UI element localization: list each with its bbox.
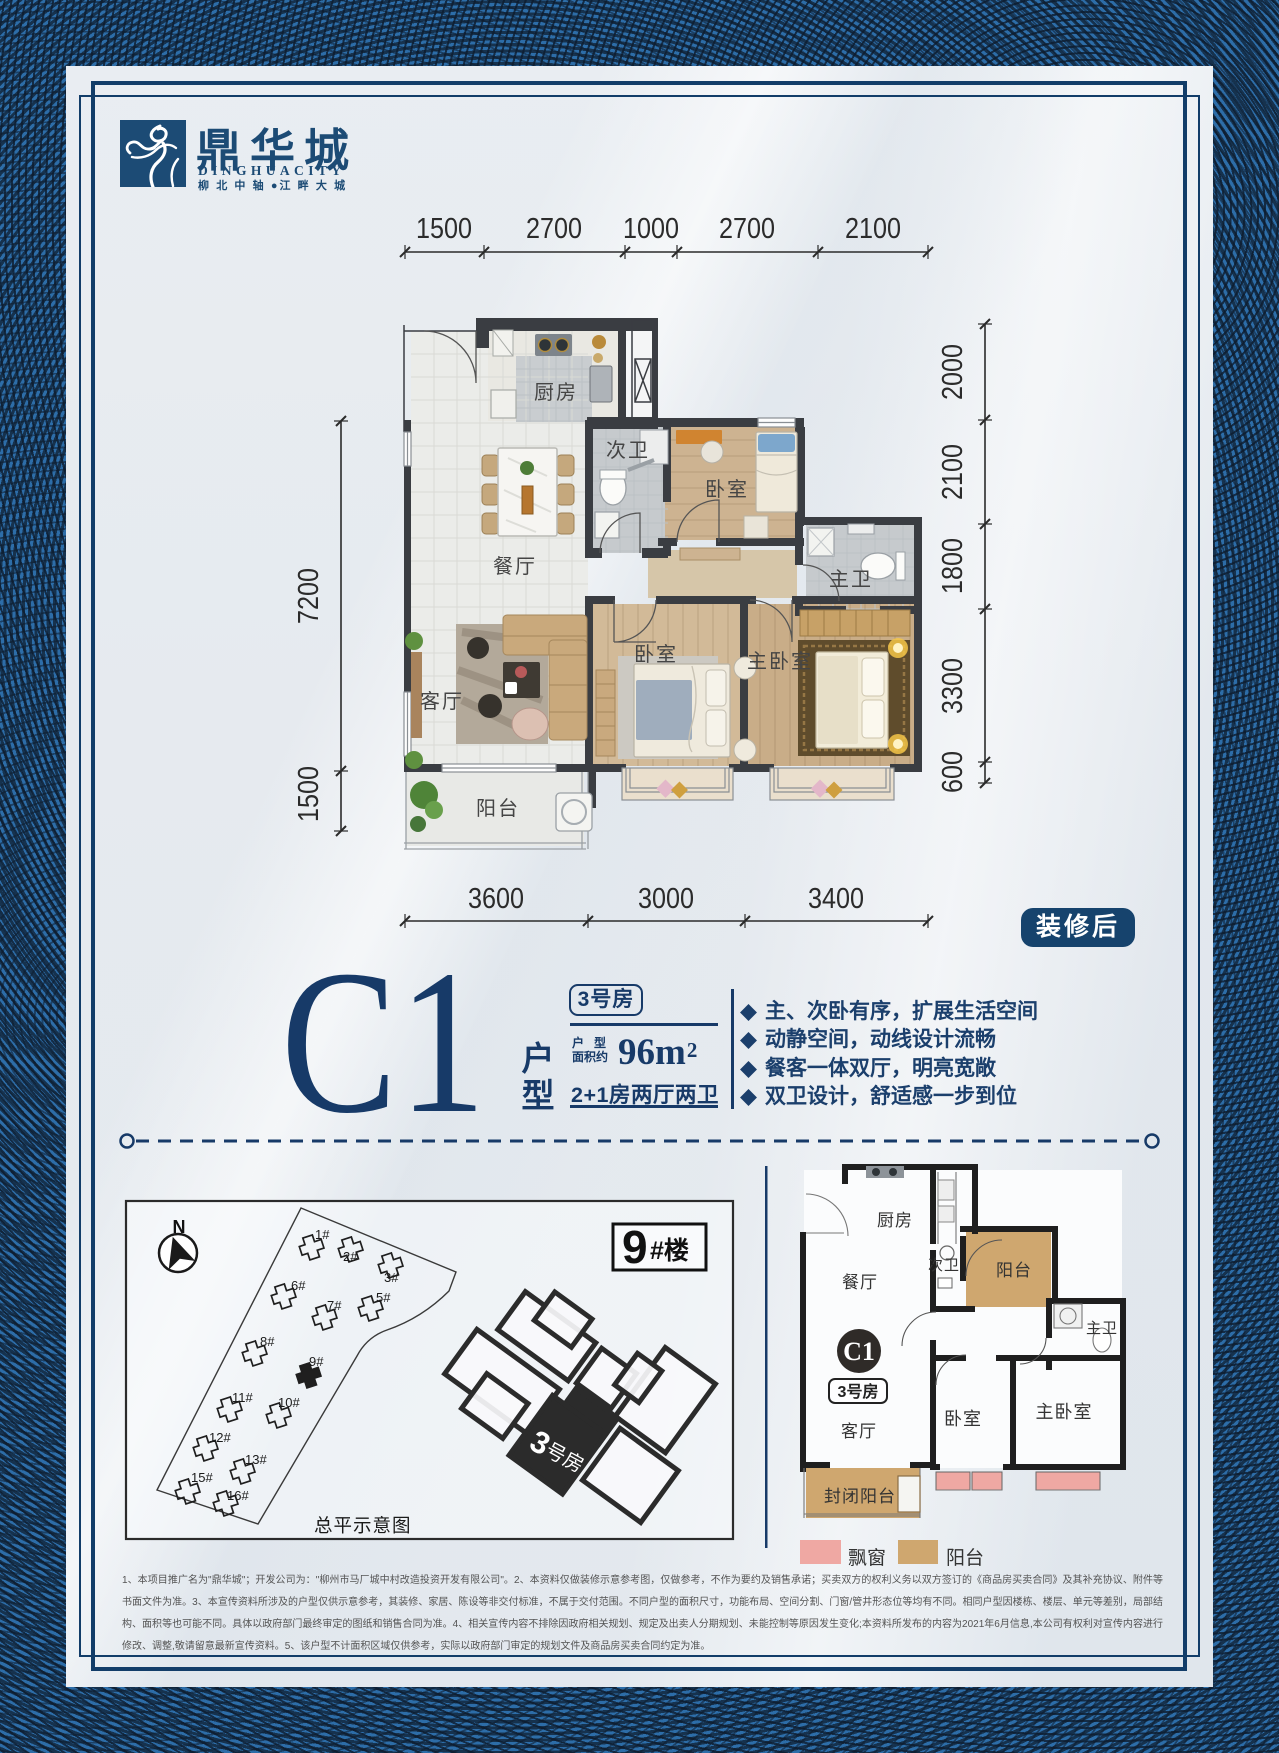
svg-text:15#: 15#	[191, 1470, 213, 1485]
svg-text:10#: 10#	[278, 1395, 300, 1410]
svg-text:12#: 12#	[209, 1430, 231, 1445]
svg-text:#楼: #楼	[650, 1237, 689, 1265]
svg-text:2700: 2700	[719, 213, 775, 245]
svg-text:2#: 2#	[343, 1249, 358, 1264]
svg-text:3#: 3#	[384, 1270, 399, 1285]
svg-text:厨房: 厨房	[877, 1211, 913, 1230]
svg-text:9#: 9#	[309, 1354, 324, 1369]
svg-text:卧室: 卧室	[944, 1409, 982, 1429]
svg-text:7200: 7200	[293, 568, 325, 624]
svg-text:8#: 8#	[260, 1334, 275, 1349]
svg-text:3000: 3000	[638, 883, 694, 915]
svg-text:1000: 1000	[623, 213, 679, 245]
svg-text:主卧室: 主卧室	[747, 650, 813, 673]
svg-text:11#: 11#	[232, 1390, 253, 1405]
svg-text:600: 600	[937, 751, 969, 793]
svg-text:阳台: 阳台	[996, 1261, 1032, 1280]
svg-text:客厅: 客厅	[841, 1422, 877, 1441]
svg-text:厨房: 厨房	[534, 381, 578, 404]
svg-text:总平示意图: 总平示意图	[314, 1515, 412, 1536]
svg-text:3400: 3400	[808, 883, 864, 915]
svg-text:2700: 2700	[526, 213, 582, 245]
svg-text:5#: 5#	[376, 1290, 391, 1305]
svg-text:3300: 3300	[937, 658, 969, 714]
svg-text:主卫: 主卫	[1086, 1320, 1118, 1337]
svg-text:1#: 1#	[315, 1227, 330, 1242]
svg-text:客厅: 客厅	[420, 690, 464, 713]
svg-text:次卫: 次卫	[606, 439, 650, 462]
svg-text:2100: 2100	[845, 213, 901, 245]
svg-text:3600: 3600	[468, 883, 524, 915]
svg-text:主卧室: 主卧室	[1036, 1402, 1093, 1422]
svg-text:卧室: 卧室	[634, 643, 678, 666]
svg-text:餐厅: 餐厅	[842, 1273, 878, 1292]
svg-text:C1: C1	[843, 1337, 875, 1366]
svg-text:1500: 1500	[293, 766, 325, 822]
svg-text:3号房: 3号房	[838, 1382, 879, 1401]
svg-text:7#: 7#	[327, 1298, 342, 1313]
svg-text:1800: 1800	[937, 538, 969, 594]
svg-text:次卫: 次卫	[928, 1257, 960, 1274]
svg-text:封闭阳台: 封闭阳台	[824, 1487, 896, 1506]
svg-text:餐厅: 餐厅	[493, 555, 537, 578]
svg-text:13#: 13#	[245, 1452, 267, 1467]
svg-text:9: 9	[622, 1221, 648, 1273]
svg-text:阳台: 阳台	[476, 797, 520, 820]
svg-text:2100: 2100	[937, 444, 969, 500]
svg-text:16#: 16#	[227, 1488, 249, 1503]
svg-text:1500: 1500	[416, 213, 472, 245]
svg-text:主卫: 主卫	[829, 568, 873, 591]
svg-text:卧室: 卧室	[705, 478, 749, 501]
svg-text:2000: 2000	[937, 344, 969, 400]
svg-text:6#: 6#	[291, 1278, 306, 1293]
